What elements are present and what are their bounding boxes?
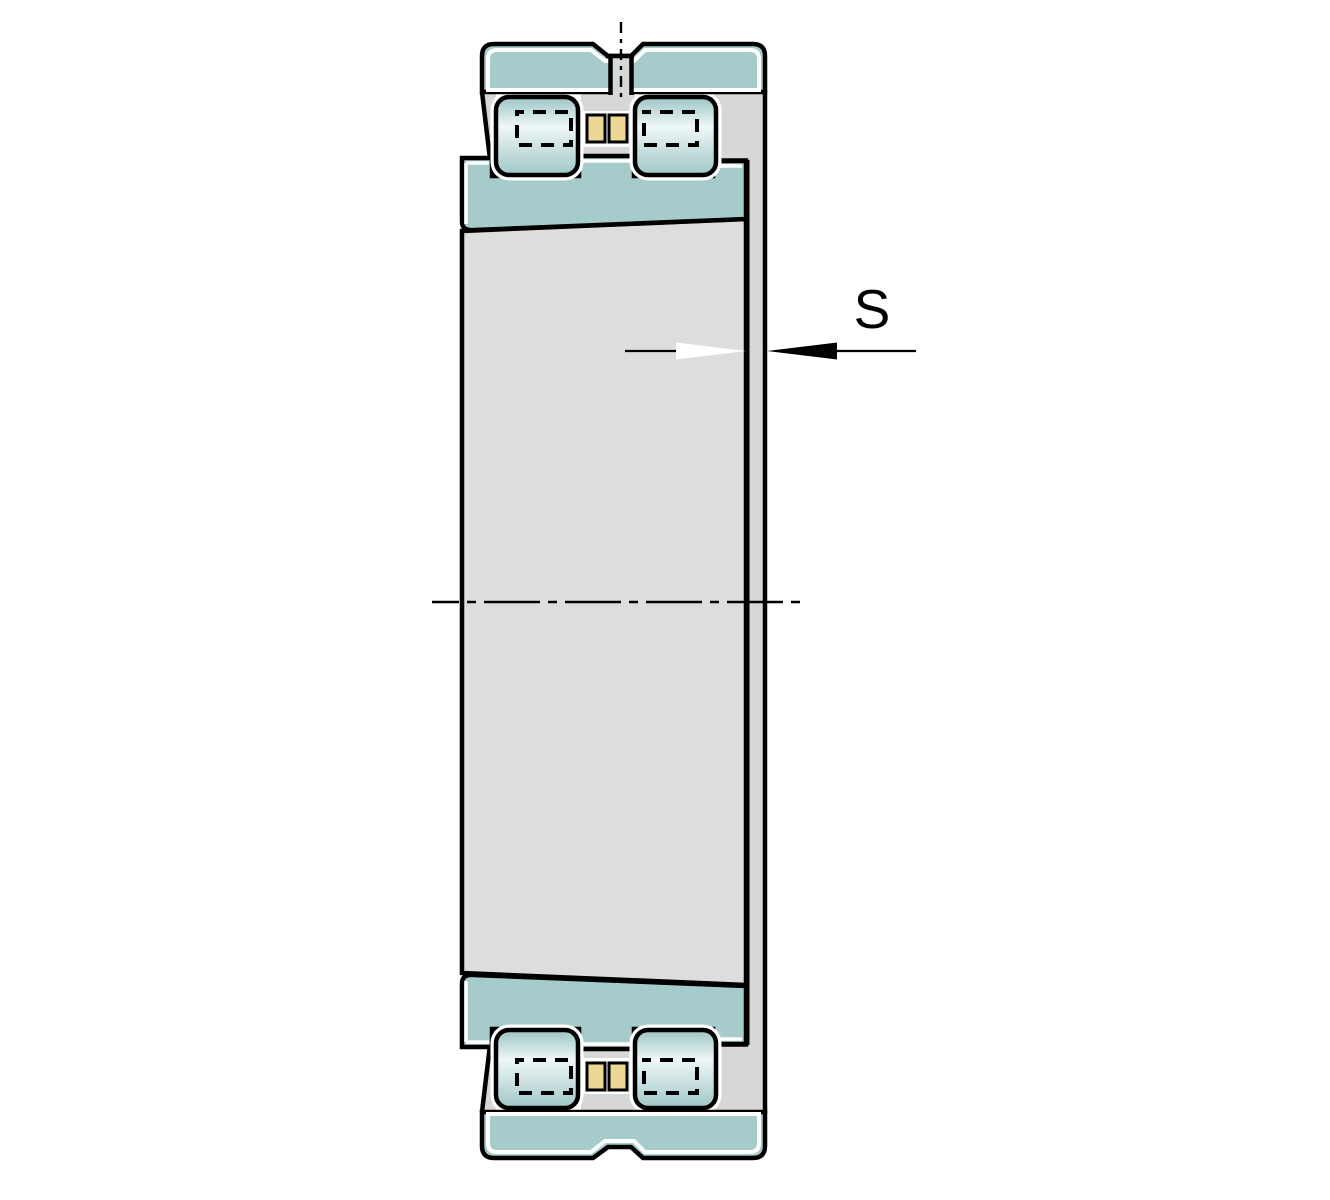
- roller-body: [635, 1030, 716, 1108]
- dimension-s-label: S: [854, 278, 891, 340]
- diagram-canvas: S: [0, 0, 1330, 1200]
- cage-bar-bottom-right: [609, 1063, 627, 1090]
- cage-bar-top-left: [587, 115, 605, 142]
- cage-bottom: [583, 1058, 629, 1094]
- cage-top: [583, 111, 629, 147]
- roller-body: [635, 97, 716, 175]
- cage-bar-top-right: [609, 115, 627, 142]
- roller-body: [496, 1030, 578, 1108]
- cage-bar-bottom-left: [587, 1063, 605, 1090]
- roller-body: [496, 97, 578, 175]
- roller-top-left: [496, 97, 578, 175]
- bearing-cross-section-diagram: S: [0, 0, 1330, 1200]
- roller-top-right: [635, 97, 716, 175]
- roller-bottom-right: [635, 1030, 716, 1108]
- roller-bottom-left: [496, 1030, 578, 1108]
